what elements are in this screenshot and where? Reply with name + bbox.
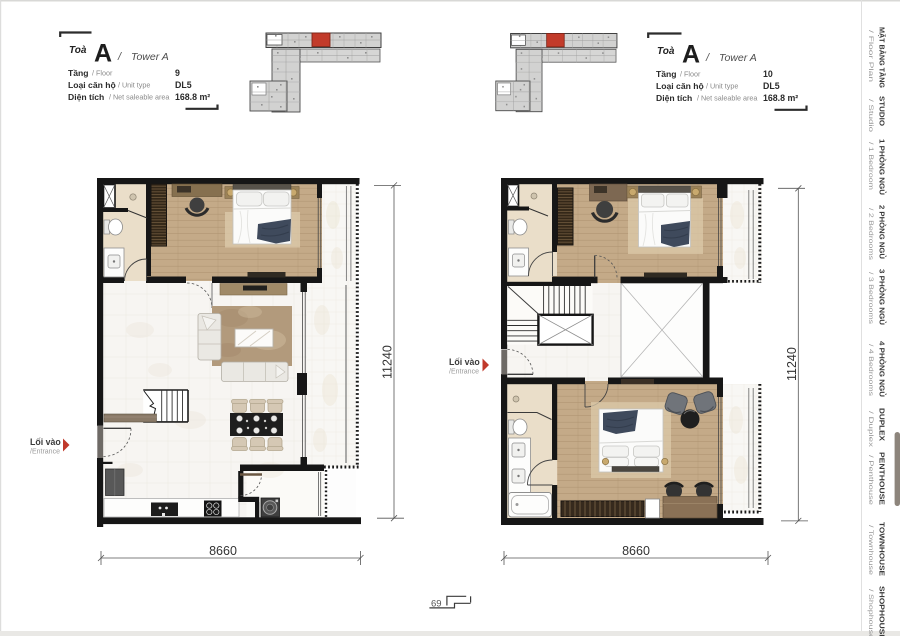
svg-text:/ Shophouse: / Shophouse xyxy=(867,589,874,636)
svg-text:11240: 11240 xyxy=(785,347,799,381)
svg-text:/ 1 Bedroom: / 1 Bedroom xyxy=(867,142,874,190)
svg-text:DUPLEX: DUPLEX xyxy=(878,408,887,441)
svg-text:Lối vào: Lối vào xyxy=(30,437,61,447)
svg-text:/Entrance: /Entrance xyxy=(449,369,479,376)
svg-text:A: A xyxy=(682,41,700,69)
svg-text:168.8 m²: 168.8 m² xyxy=(763,93,798,103)
svg-text:/ Unit type: / Unit type xyxy=(706,82,738,91)
svg-text:/Entrance: /Entrance xyxy=(30,449,60,456)
svg-text:Diện tích: Diện tích xyxy=(656,93,692,103)
svg-text:/ Net saleable area: / Net saleable area xyxy=(109,93,169,102)
svg-text:Tầng: Tầng xyxy=(68,68,89,78)
svg-text:Toà: Toà xyxy=(69,45,87,56)
svg-text:/ Floor: / Floor xyxy=(680,70,701,79)
svg-text:/ 2 Bedrooms: / 2 Bedrooms xyxy=(867,208,874,260)
svg-text:/ Net saleable area: / Net saleable area xyxy=(697,94,757,103)
svg-text:PENTHOUSE: PENTHOUSE xyxy=(878,452,887,505)
svg-text:9: 9 xyxy=(175,68,180,78)
svg-text:SHOPHOUSE: SHOPHOUSE xyxy=(878,586,887,636)
svg-text:1 PHÒNG NGỦ: 1 PHÒNG NGỦ xyxy=(878,139,887,195)
svg-text:/ Duplex: / Duplex xyxy=(867,411,874,448)
svg-text:STUDIO: STUDIO xyxy=(878,96,887,126)
svg-text:Loại căn hộ: Loại căn hộ xyxy=(68,80,116,90)
svg-text:Toà: Toà xyxy=(657,46,675,57)
svg-text:8660: 8660 xyxy=(622,544,650,558)
svg-text:/ 3 Bedrooms: / 3 Bedrooms xyxy=(867,272,874,324)
svg-text:/ 4 Bedrooms: / 4 Bedrooms xyxy=(867,344,874,396)
svg-text:10: 10 xyxy=(763,69,773,79)
svg-text:2 PHÒNG NGỦ: 2 PHÒNG NGỦ xyxy=(878,205,887,259)
svg-text:/ Unit type: / Unit type xyxy=(118,81,150,90)
svg-text:TOWNHOUSE: TOWNHOUSE xyxy=(878,522,887,576)
svg-text:/ Floor Plan: / Floor Plan xyxy=(867,30,874,83)
svg-text:168.8 m²: 168.8 m² xyxy=(175,92,210,102)
svg-text:DL5: DL5 xyxy=(763,81,780,91)
svg-text:A: A xyxy=(94,40,112,68)
svg-text:8660: 8660 xyxy=(209,544,237,558)
svg-text:/ Townhouse: / Townhouse xyxy=(867,525,874,576)
svg-text:/ Studio: / Studio xyxy=(867,99,874,133)
svg-text:Loại căn hộ: Loại căn hộ xyxy=(656,81,704,91)
svg-text:Tower A: Tower A xyxy=(719,52,757,64)
svg-text:Lối vào: Lối vào xyxy=(449,357,480,367)
svg-text:Tower A: Tower A xyxy=(131,51,169,63)
svg-text:MẶT BẰNG TẦNG: MẶT BẰNG TẦNG xyxy=(878,27,888,88)
svg-text:Tầng: Tầng xyxy=(656,69,677,79)
svg-text:3 PHÒNG NGỦ: 3 PHÒNG NGỦ xyxy=(878,269,887,325)
svg-text:/ Penthouse: / Penthouse xyxy=(867,455,874,506)
svg-text:11240: 11240 xyxy=(381,345,395,379)
svg-text:DL5: DL5 xyxy=(175,80,192,90)
svg-text:/ Floor: / Floor xyxy=(92,69,113,78)
svg-text:4 PHÒNG NGỦ: 4 PHÒNG NGỦ xyxy=(878,341,887,397)
svg-text:Diện tích: Diện tích xyxy=(68,92,104,102)
